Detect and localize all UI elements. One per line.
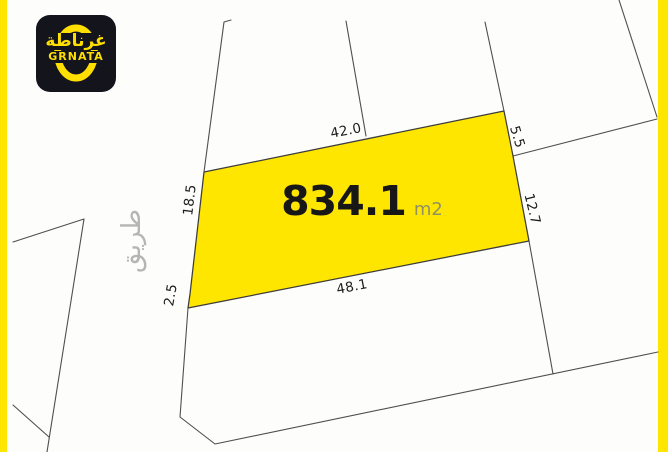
area-value: 834.1	[281, 177, 406, 225]
boundary-line-bottom-parcel	[180, 308, 658, 444]
boundary-line-lower-right	[529, 241, 553, 374]
logo-arabic-text: غرناطة	[42, 33, 109, 50]
boundary-line-top-middle	[346, 21, 366, 136]
boundary-line-upper-right	[619, 0, 657, 117]
boundary-line-left-parcel	[13, 219, 84, 452]
logo-latin-text: GRNATA	[46, 51, 106, 63]
parcel-area-label: 834.1 m2	[281, 177, 443, 225]
boundary-line-top-left	[204, 20, 231, 172]
boundary-line-top-right	[485, 22, 504, 111]
road-label: طريق	[117, 209, 147, 273]
plot-map-canvas: 42.0 18.5 5.5 12.7 2.5 48.1 834.1 m2 طري…	[0, 0, 668, 452]
boundary-line-right-horizontal	[513, 119, 657, 156]
area-unit: m2	[414, 199, 443, 220]
grnata-logo: غرناطة GRNATA	[36, 15, 116, 92]
boundary-line-left-diagonal	[13, 405, 49, 437]
